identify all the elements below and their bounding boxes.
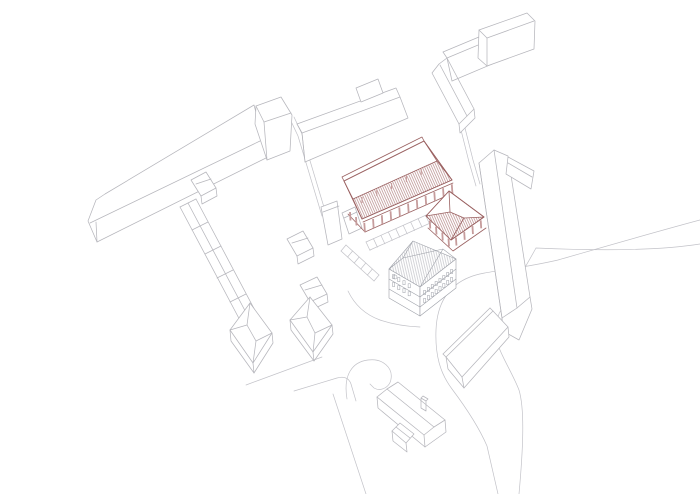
drawing-canvas — [0, 0, 700, 494]
site-axonometric-drawing — [0, 0, 700, 494]
paper-background — [0, 0, 700, 494]
